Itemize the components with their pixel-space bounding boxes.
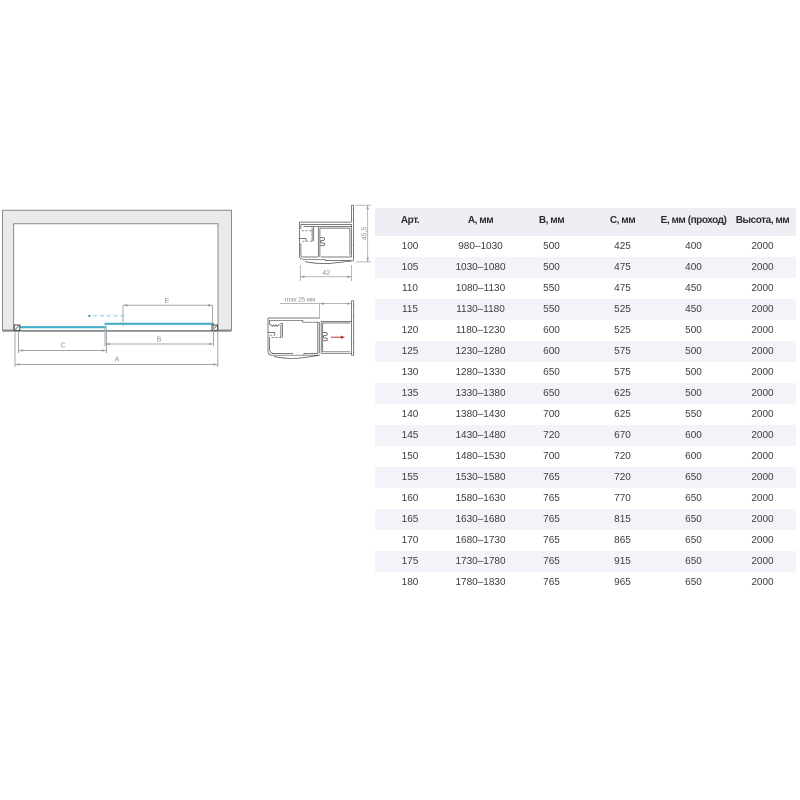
svg-text:45,5: 45,5 (362, 227, 369, 241)
svg-text:В: В (157, 337, 162, 344)
svg-text:Е: Е (165, 298, 170, 305)
svg-text:С: С (60, 343, 65, 350)
svg-text:А: А (115, 357, 120, 364)
svg-text:max 25 мм: max 25 мм (285, 296, 316, 303)
svg-text:42: 42 (322, 270, 330, 277)
